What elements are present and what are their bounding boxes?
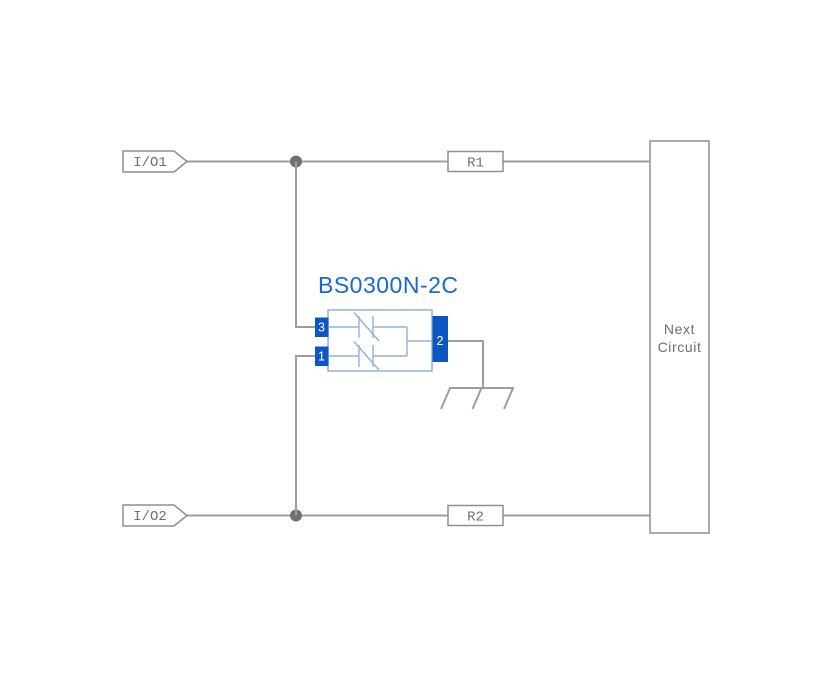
ground-symbol [441,388,514,409]
wire-junction-top-to-pin3 [296,162,316,328]
wire-pin1-to-junction-bottom [296,356,316,516]
ground-hatch-3 [504,388,513,409]
top-rail: I/O1 R1 [123,151,650,172]
ground-hatch-2 [473,388,482,409]
next-circuit-block: Next Circuit [650,141,709,533]
next-circuit-label-line1: Next [664,321,695,337]
ground-hatch-1 [441,388,450,409]
io1-connector-label: I/O1 [133,155,167,171]
component-title: BS0300N-2C [318,272,459,298]
resistor-r2-label: R2 [467,510,484,526]
bottom-rail: I/O2 R2 [123,505,650,526]
pin-2-number: 2 [437,334,444,348]
pin-3-number: 3 [318,321,325,335]
io2-connector-label: I/O2 [133,509,167,525]
tvs-component: BS0300N-2C [315,272,459,371]
wire-pin2-to-ground [448,341,483,388]
next-circuit-label-line2: Circuit [658,339,702,355]
schematic-canvas: I/O1 R1 I/O2 R2 Next Circuit BS0300N-2C [0,0,832,675]
next-circuit-box [650,141,709,533]
pin-1-number: 1 [318,350,325,364]
circuit-diagram: I/O1 R1 I/O2 R2 Next Circuit BS0300N-2C [0,0,832,675]
resistor-r1-label: R1 [467,156,484,172]
